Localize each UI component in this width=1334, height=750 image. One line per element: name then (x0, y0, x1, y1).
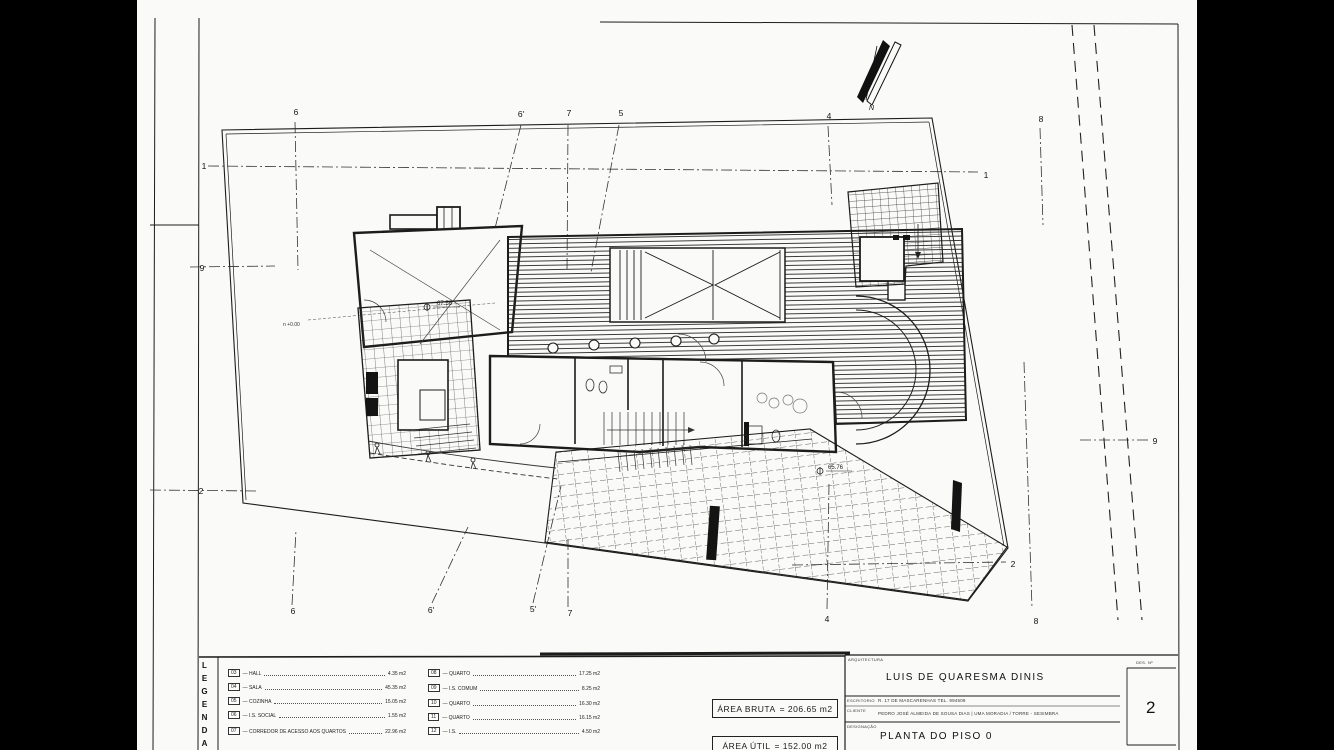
legend-leader-dots (264, 675, 384, 676)
client-name: PEDRO JOSÉ ALMEIDA DE SOUSA DIAS | UMA M… (878, 711, 1059, 716)
legend-item-area: 8.25 m2 (582, 686, 600, 692)
level-annotation: n +0.00 (283, 322, 300, 328)
legend-item-area: 16.15 m2 (579, 715, 600, 721)
level-annotation: 65.76 (828, 465, 844, 471)
area-util-box: ÁREA ÚTIL = 152.00 m2 (712, 736, 838, 750)
legend-item-name: — I.S. (443, 729, 457, 735)
grid-label-left: 2 (199, 486, 204, 496)
designation-label: DESIGNAÇÃO (847, 724, 877, 729)
legend-item-name: — I.S. SOCIAL (243, 713, 277, 719)
legend-item-number: 03 (228, 669, 240, 677)
grid-label-bottom: 6 (291, 606, 296, 616)
grid-label-bottom: 6' (428, 605, 435, 615)
legend-leader-dots (480, 690, 579, 691)
legend-leader-dots (265, 689, 382, 690)
legend-leader-dots (473, 719, 576, 720)
legend-item-name: — QUARTO (442, 715, 470, 721)
legend-item: 07 — CORREDOR DE ACESSO AOS QUARTOS 22.9… (228, 725, 406, 735)
office-address: R. 17 DE MASCARENHAS TEL. 994509 (878, 698, 966, 703)
client-label: CLIENTE (847, 708, 866, 713)
legend-title: LEGENDA (200, 661, 209, 749)
legend-item-number: 11 (428, 713, 439, 721)
legend-item: 09 — I.S. COMUM 8.25 m2 (428, 682, 600, 692)
legend-item-number: 07 (228, 727, 240, 735)
legend-item: 05 — COZINHA 15.05 m2 (228, 695, 406, 705)
legend-item-name: — COZINHA (243, 699, 272, 705)
legend-leader-dots (274, 703, 382, 704)
kitchen-tiled-area (358, 300, 480, 458)
legend-item-name: — QUARTO (443, 701, 471, 707)
legend-item: 12 — I.S. 4.50 m2 (428, 725, 600, 735)
titleblock-section-label: ARQUITECTURA (848, 657, 883, 662)
grid-label-right: 1 (984, 170, 989, 180)
legend-item-number: 06 (228, 711, 240, 719)
legend-item-name: — HALL (243, 671, 262, 677)
grid-label-top: 7 (567, 108, 572, 118)
floor-plan-drawing: N (0, 0, 1334, 750)
legend-item-number: 05 (228, 697, 240, 705)
legend-item-number: 04 (228, 683, 240, 691)
area-bruta-box: ÁREA BRUTA = 206.65 m2 (712, 699, 838, 718)
legend-item-area: 4.35 m2 (388, 671, 406, 677)
grid-label-left: 9 (200, 263, 205, 273)
grid-label-left: 1 (202, 161, 207, 171)
legend-item-number: 09 (428, 684, 440, 692)
grid-label-top: 4 (827, 111, 832, 121)
office-label: ESCRITORIO (847, 698, 875, 703)
legend-item-name: — SALA (243, 685, 262, 691)
grid-label-top: 5 (619, 108, 624, 118)
legend-leader-dots (459, 733, 578, 734)
grid-label-right: 9 (1153, 436, 1158, 446)
legend-item-number: 12 (428, 727, 440, 735)
legend-item-name: — I.S. COMUM (443, 686, 478, 692)
legend-item: 11 — QUARTO 16.15 m2 (428, 711, 600, 721)
grid-label-bottom: 5' (530, 604, 537, 614)
grid-label-top: 6' (518, 109, 525, 119)
grid-label-top: 6 (294, 107, 299, 117)
legend-item-name: — CORREDOR DE ACESSO AOS QUARTOS (243, 729, 346, 735)
area-util-value: = 152.00 m2 (774, 741, 827, 750)
legend-item-name: — QUARTO (443, 671, 471, 677)
legend-item-area: 45.35 m2 (385, 685, 406, 691)
legend-item-number: 08 (428, 669, 440, 677)
legend-item: 06 — I.S. SOCIAL 1.55 m2 (228, 709, 406, 719)
area-util-label: ÁREA ÚTIL (723, 741, 771, 750)
grid-label-bottom: 7 (568, 608, 573, 618)
legend-item: 10 — QUARTO 16.30 m2 (428, 697, 600, 707)
sheet-number: 2 (1146, 698, 1155, 718)
area-bruta-label: ÁREA BRUTA (717, 704, 775, 714)
legend-item-area: 15.05 m2 (385, 699, 406, 705)
legend-item-number: 10 (428, 699, 440, 707)
legend-item-area: 17.25 m2 (579, 671, 600, 677)
grid-label-top: 8 (1039, 114, 1044, 124)
sheet-number-label: DES. Nº (1136, 660, 1153, 665)
deck-opening (610, 248, 785, 322)
legend-leader-dots (349, 733, 382, 734)
legend-item: 08 — QUARTO 17.25 m2 (428, 667, 600, 677)
legend-item-area: 22.96 m2 (385, 729, 406, 735)
level-annotation: 67.56 (437, 301, 453, 307)
drawing-title: PLANTA DO PISO 0 (880, 731, 993, 742)
legend-leader-dots (473, 705, 576, 706)
grid-label-bottom: 4 (825, 614, 830, 624)
architect-name: LUIS DE QUARESMA DINIS (886, 672, 1045, 683)
grid-label-bottom: 8 (1034, 616, 1039, 626)
legend-item-area: 4.50 m2 (582, 729, 600, 735)
area-bruta-value: = 206.65 m2 (780, 704, 833, 714)
grid-label-right: 2 (1011, 559, 1016, 569)
legend-item: 04 — SALA 45.35 m2 (228, 681, 406, 691)
legend-item: 03 — HALL 4.35 m2 (228, 667, 406, 677)
scanned-floor-plan-page: N (0, 0, 1334, 750)
legend-item-area: 1.55 m2 (388, 713, 406, 719)
legend-leader-dots (473, 675, 576, 676)
legend-leader-dots (279, 717, 385, 718)
legend-item-area: 16.30 m2 (579, 701, 600, 707)
